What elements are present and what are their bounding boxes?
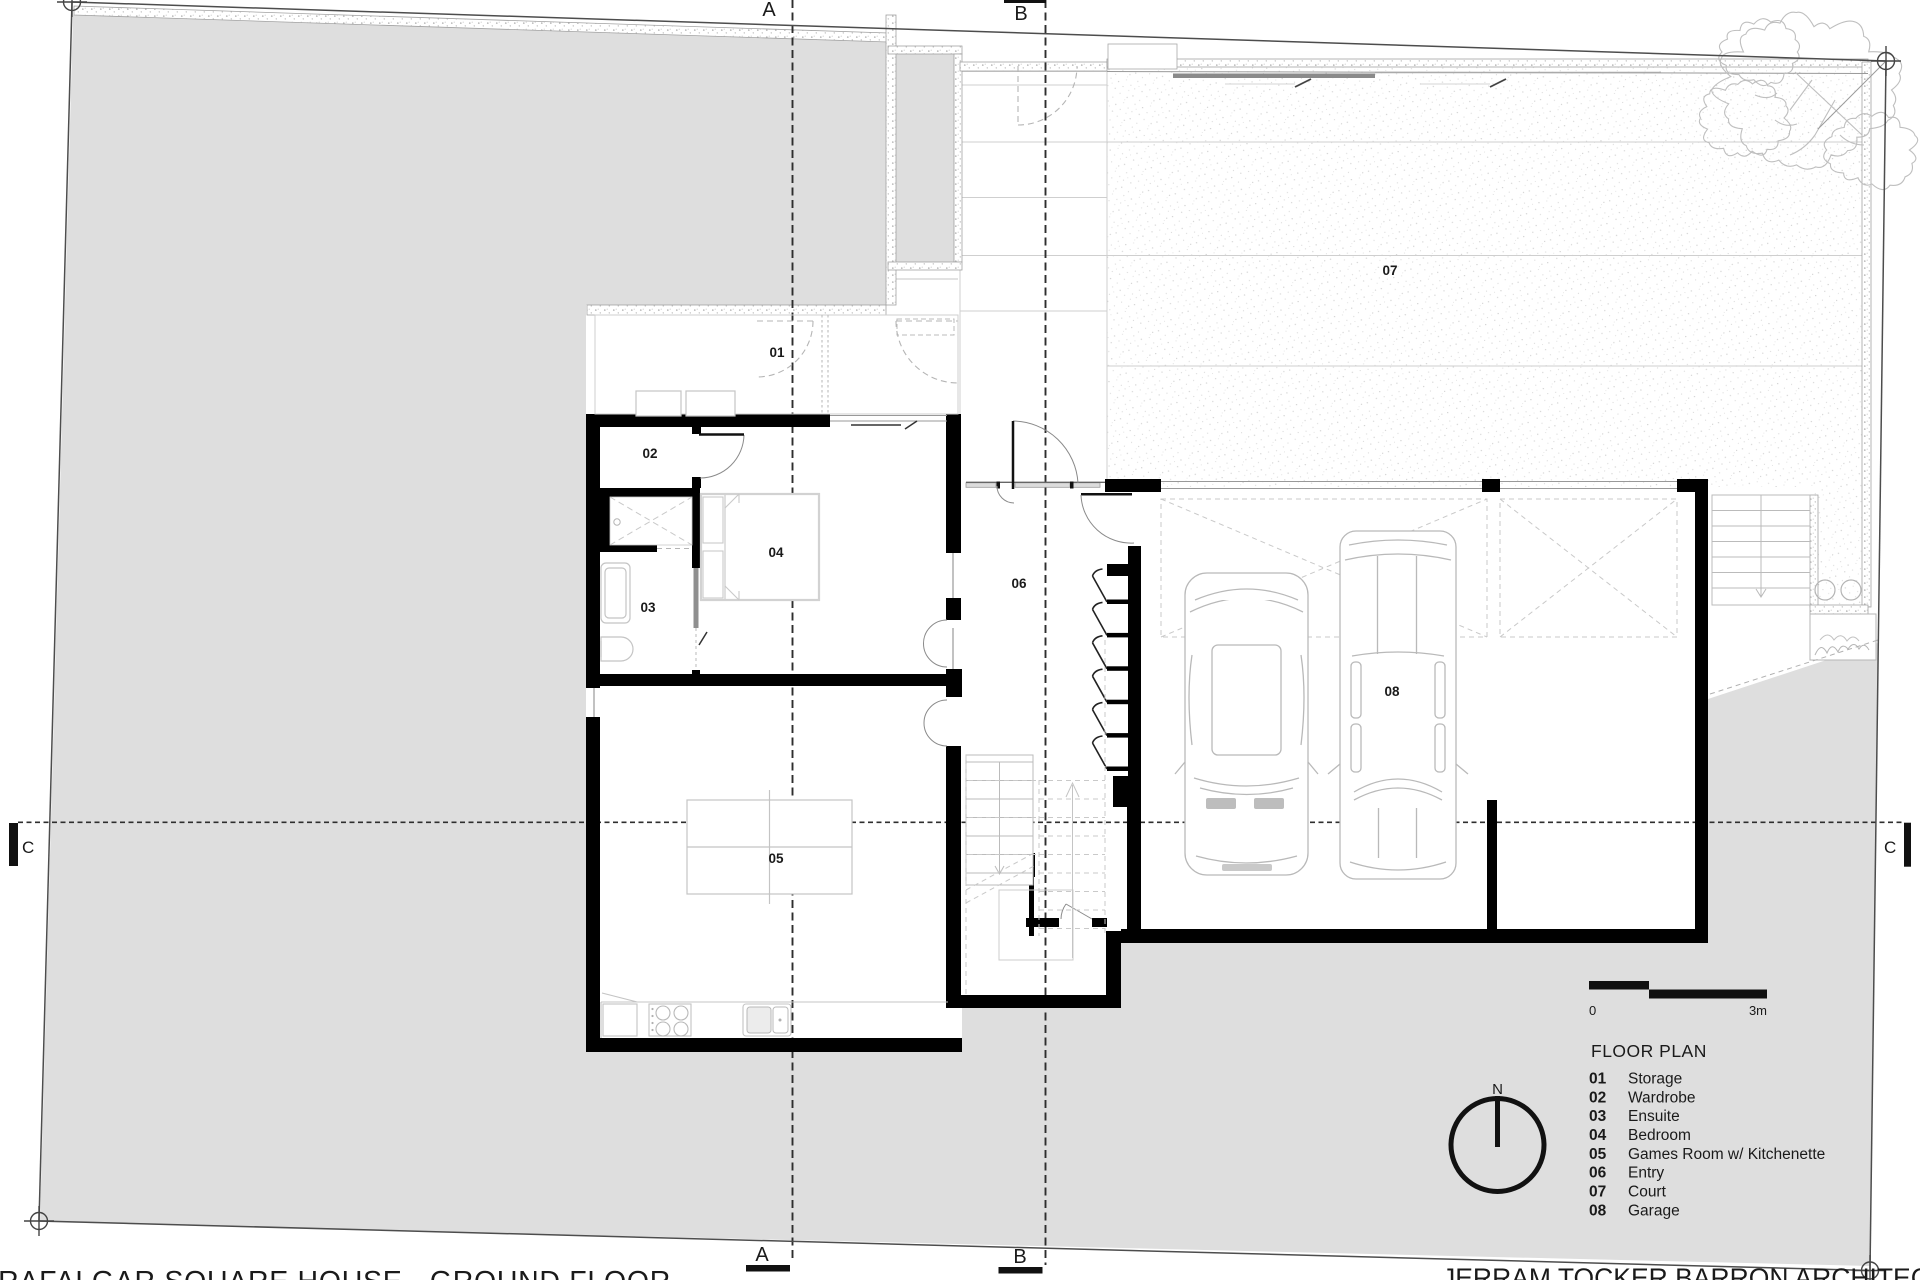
svg-text:04: 04	[1589, 1127, 1607, 1144]
svg-text:TRAFALGAR SQUARE HOUSE - GROUN: TRAFALGAR SQUARE HOUSE - GROUND FLOOR	[0, 1266, 671, 1280]
svg-text:03: 03	[1589, 1108, 1607, 1125]
svg-text:3m: 3m	[1749, 1003, 1767, 1018]
svg-text:C: C	[1884, 838, 1896, 857]
svg-text:Wardrobe: Wardrobe	[1628, 1089, 1695, 1106]
svg-text:A: A	[755, 1244, 769, 1266]
svg-text:08: 08	[1384, 684, 1400, 699]
svg-text:02: 02	[642, 446, 657, 461]
svg-text:Court: Court	[1628, 1184, 1667, 1201]
svg-text:B: B	[1014, 3, 1027, 25]
svg-text:06: 06	[1011, 576, 1027, 591]
svg-text:04: 04	[768, 545, 784, 560]
svg-text:Garage: Garage	[1628, 1202, 1680, 1219]
svg-text:07: 07	[1382, 263, 1397, 278]
svg-text:B: B	[1013, 1246, 1026, 1268]
svg-text:08: 08	[1589, 1202, 1607, 1219]
svg-text:05: 05	[768, 851, 784, 866]
svg-text:01: 01	[769, 345, 785, 360]
svg-text:02: 02	[1589, 1089, 1606, 1106]
svg-text:03: 03	[640, 600, 656, 615]
svg-text:N: N	[1492, 1081, 1503, 1098]
svg-text:Storage: Storage	[1628, 1071, 1682, 1088]
svg-text:01: 01	[1589, 1071, 1607, 1088]
svg-text:07: 07	[1589, 1184, 1606, 1201]
svg-text:Entry: Entry	[1628, 1165, 1664, 1182]
svg-text:05: 05	[1589, 1146, 1607, 1163]
svg-text:JERRAM TOCKER BARRON ARCHITECT: JERRAM TOCKER BARRON ARCHITECTS	[1442, 1263, 1920, 1280]
svg-text:Bedroom: Bedroom	[1628, 1127, 1691, 1144]
svg-text:Ensuite: Ensuite	[1628, 1108, 1680, 1125]
svg-text:C: C	[22, 838, 34, 857]
svg-text:A: A	[762, 0, 776, 21]
svg-text:FLOOR PLAN: FLOOR PLAN	[1591, 1041, 1707, 1061]
svg-text:Games Room w/ Kitchenette: Games Room w/ Kitchenette	[1628, 1146, 1825, 1163]
svg-text:0: 0	[1589, 1003, 1596, 1018]
svg-text:06: 06	[1589, 1165, 1607, 1182]
